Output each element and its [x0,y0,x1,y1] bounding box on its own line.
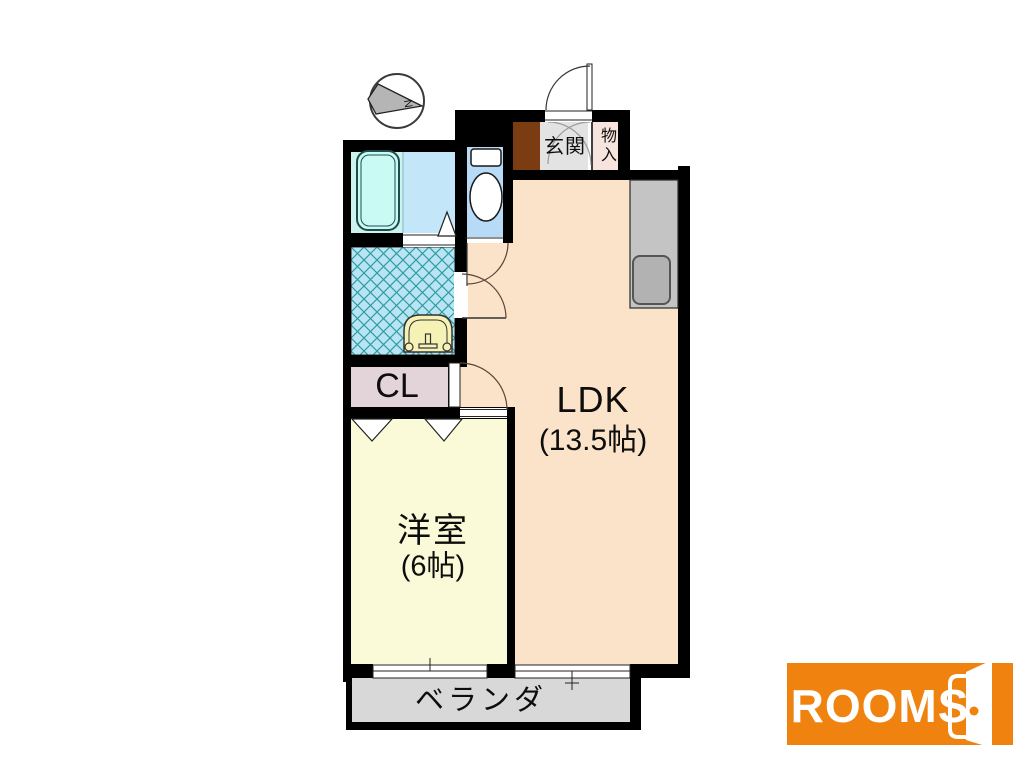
logo-text: ROOMS [791,683,970,729]
kitchen-counter [630,180,678,308]
bathtub-icon [357,151,399,230]
closet-label: CL [375,369,418,403]
entrance-door-arc [546,66,590,110]
shoe-cabinet [513,121,540,172]
entrance-label: 玄関 [544,137,586,157]
bedroom-label: 洋室 [397,514,469,548]
toilet-icon [470,149,502,221]
logo-door-icon [966,660,992,748]
storage-label: 物入 [598,127,614,165]
logo-door-knob [970,707,979,716]
washing-machine-pan-icon [404,315,452,352]
floorplan-drawing: N [0,0,1023,768]
ldk-size-label: (13.5帖) [539,426,647,456]
entrance-door-leaf [587,64,592,110]
floorplan-page: N 玄関 物入 LDK (13.5帖) CL 洋室 (6帖) ベランダ ROOM… [0,0,1023,768]
bedroom-door-leaf [449,363,460,407]
ldk-hall-floor [460,243,515,410]
compass-north-arrow: N [368,74,424,128]
ldk-label: LDK [556,382,629,418]
veranda-label: ベランダ [415,687,547,716]
entrance-door [546,64,592,110]
kitchen-sink-icon [633,256,670,304]
bedroom-size-label: (6帖) [401,553,465,582]
